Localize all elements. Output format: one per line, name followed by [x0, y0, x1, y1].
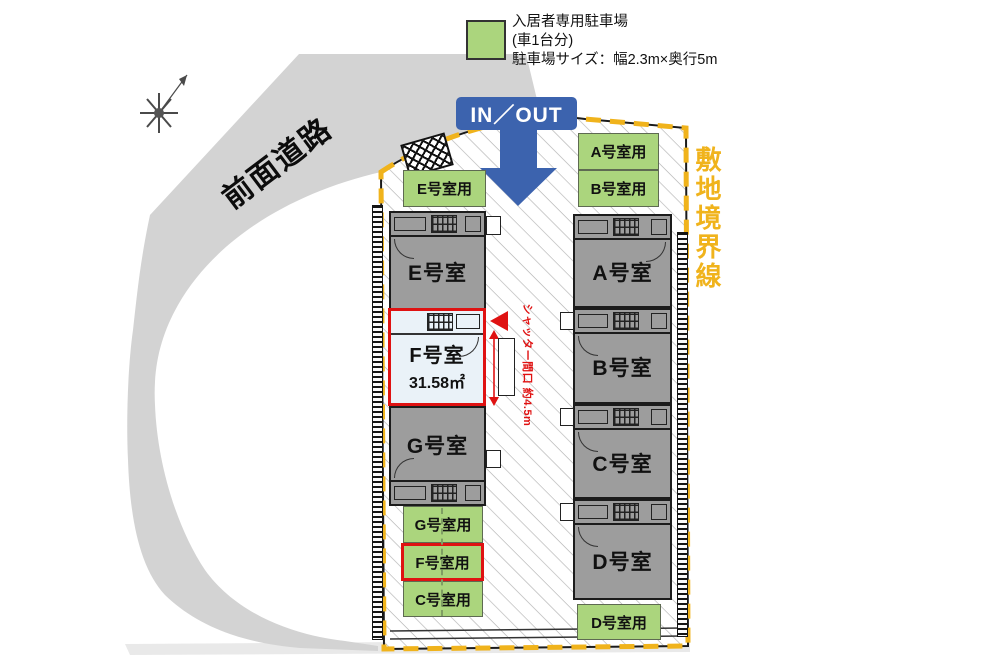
parking-spot-e: E号室用	[403, 170, 486, 207]
unit-fixture-band	[575, 216, 670, 240]
parking-spot-label: A号室用	[591, 141, 647, 162]
site-boundary-label: 敷地境界線	[694, 146, 723, 292]
door-arc-icon	[578, 432, 598, 452]
unit-fixture-band	[575, 310, 670, 334]
door-arc-icon	[459, 337, 479, 357]
unit-label: G号室	[407, 430, 468, 460]
unit-f-highlighted: F号室 31.58㎡	[388, 308, 486, 406]
parking-spot-d: D号室用	[577, 604, 661, 640]
door-arc-icon	[646, 242, 666, 262]
unit-fixture-band	[575, 501, 670, 525]
pilaster	[560, 503, 574, 521]
shutter-dimension-label: シャッター間口 約4.5m	[520, 299, 536, 431]
legend-swatch	[466, 20, 506, 60]
door-arc-icon	[394, 239, 414, 259]
legend-size-note: 駐車場サイズ：幅2.3m×奥行5m	[512, 51, 717, 70]
right-fence	[677, 232, 688, 637]
door-arc-icon	[394, 458, 414, 478]
unit-b: B号室	[573, 308, 672, 404]
parking-spot-b: B号室用	[578, 170, 659, 207]
parking-divider-line	[441, 508, 443, 616]
in-out-label: IN／OUT	[470, 99, 562, 129]
north-arrow-icon	[140, 75, 187, 133]
parking-spot-c: C号室用	[403, 581, 483, 617]
pilaster	[486, 450, 501, 468]
parking-spot-label: C号室用	[415, 589, 471, 610]
unit-d: D号室	[573, 499, 672, 600]
door-arc-icon	[578, 527, 598, 547]
unit-fixture-band	[575, 406, 670, 430]
parking-spot-label: B号室用	[591, 178, 647, 199]
unit-fixture-band	[391, 213, 484, 237]
parking-spot-a: A号室用	[578, 133, 659, 170]
unit-fixture-band	[391, 480, 484, 504]
unit-label: F号室	[409, 339, 464, 368]
legend-text: 入居者専用駐車場 (車1台分) 駐車場サイズ：幅2.3m×奥行5m	[512, 13, 717, 70]
door-arc-icon	[578, 336, 598, 356]
left-fence	[372, 205, 383, 640]
unit-label: D号室	[592, 546, 652, 576]
site-plan: E号室用 A号室用 B号室用 G号室用 F号室用 C号室用 D号室用 E号室 F…	[0, 0, 1000, 667]
unit-g: G号室	[389, 406, 486, 506]
pilaster	[560, 312, 574, 330]
unit-c: C号室	[573, 404, 672, 499]
parking-spot-label: E号室用	[417, 178, 472, 199]
legend-title: 入居者専用駐車場	[512, 13, 717, 32]
unit-a: A号室	[573, 214, 672, 308]
unit-area: 31.58㎡	[409, 369, 465, 393]
pilaster	[486, 216, 501, 235]
unit-label: B号室	[592, 352, 652, 382]
unit-fixture-band	[391, 311, 483, 335]
unit-label: A号室	[592, 257, 652, 287]
unit-e: E号室	[389, 211, 486, 310]
unit-label: E号室	[408, 257, 467, 287]
pilaster	[560, 408, 574, 426]
in-out-banner: IN／OUT	[456, 97, 577, 130]
pilaster	[498, 338, 515, 396]
legend-subtitle: (車1台分)	[512, 32, 717, 51]
unit-label: C号室	[592, 448, 652, 478]
parking-spot-label: D号室用	[591, 612, 647, 633]
parking-spot-g: G号室用	[403, 506, 483, 543]
